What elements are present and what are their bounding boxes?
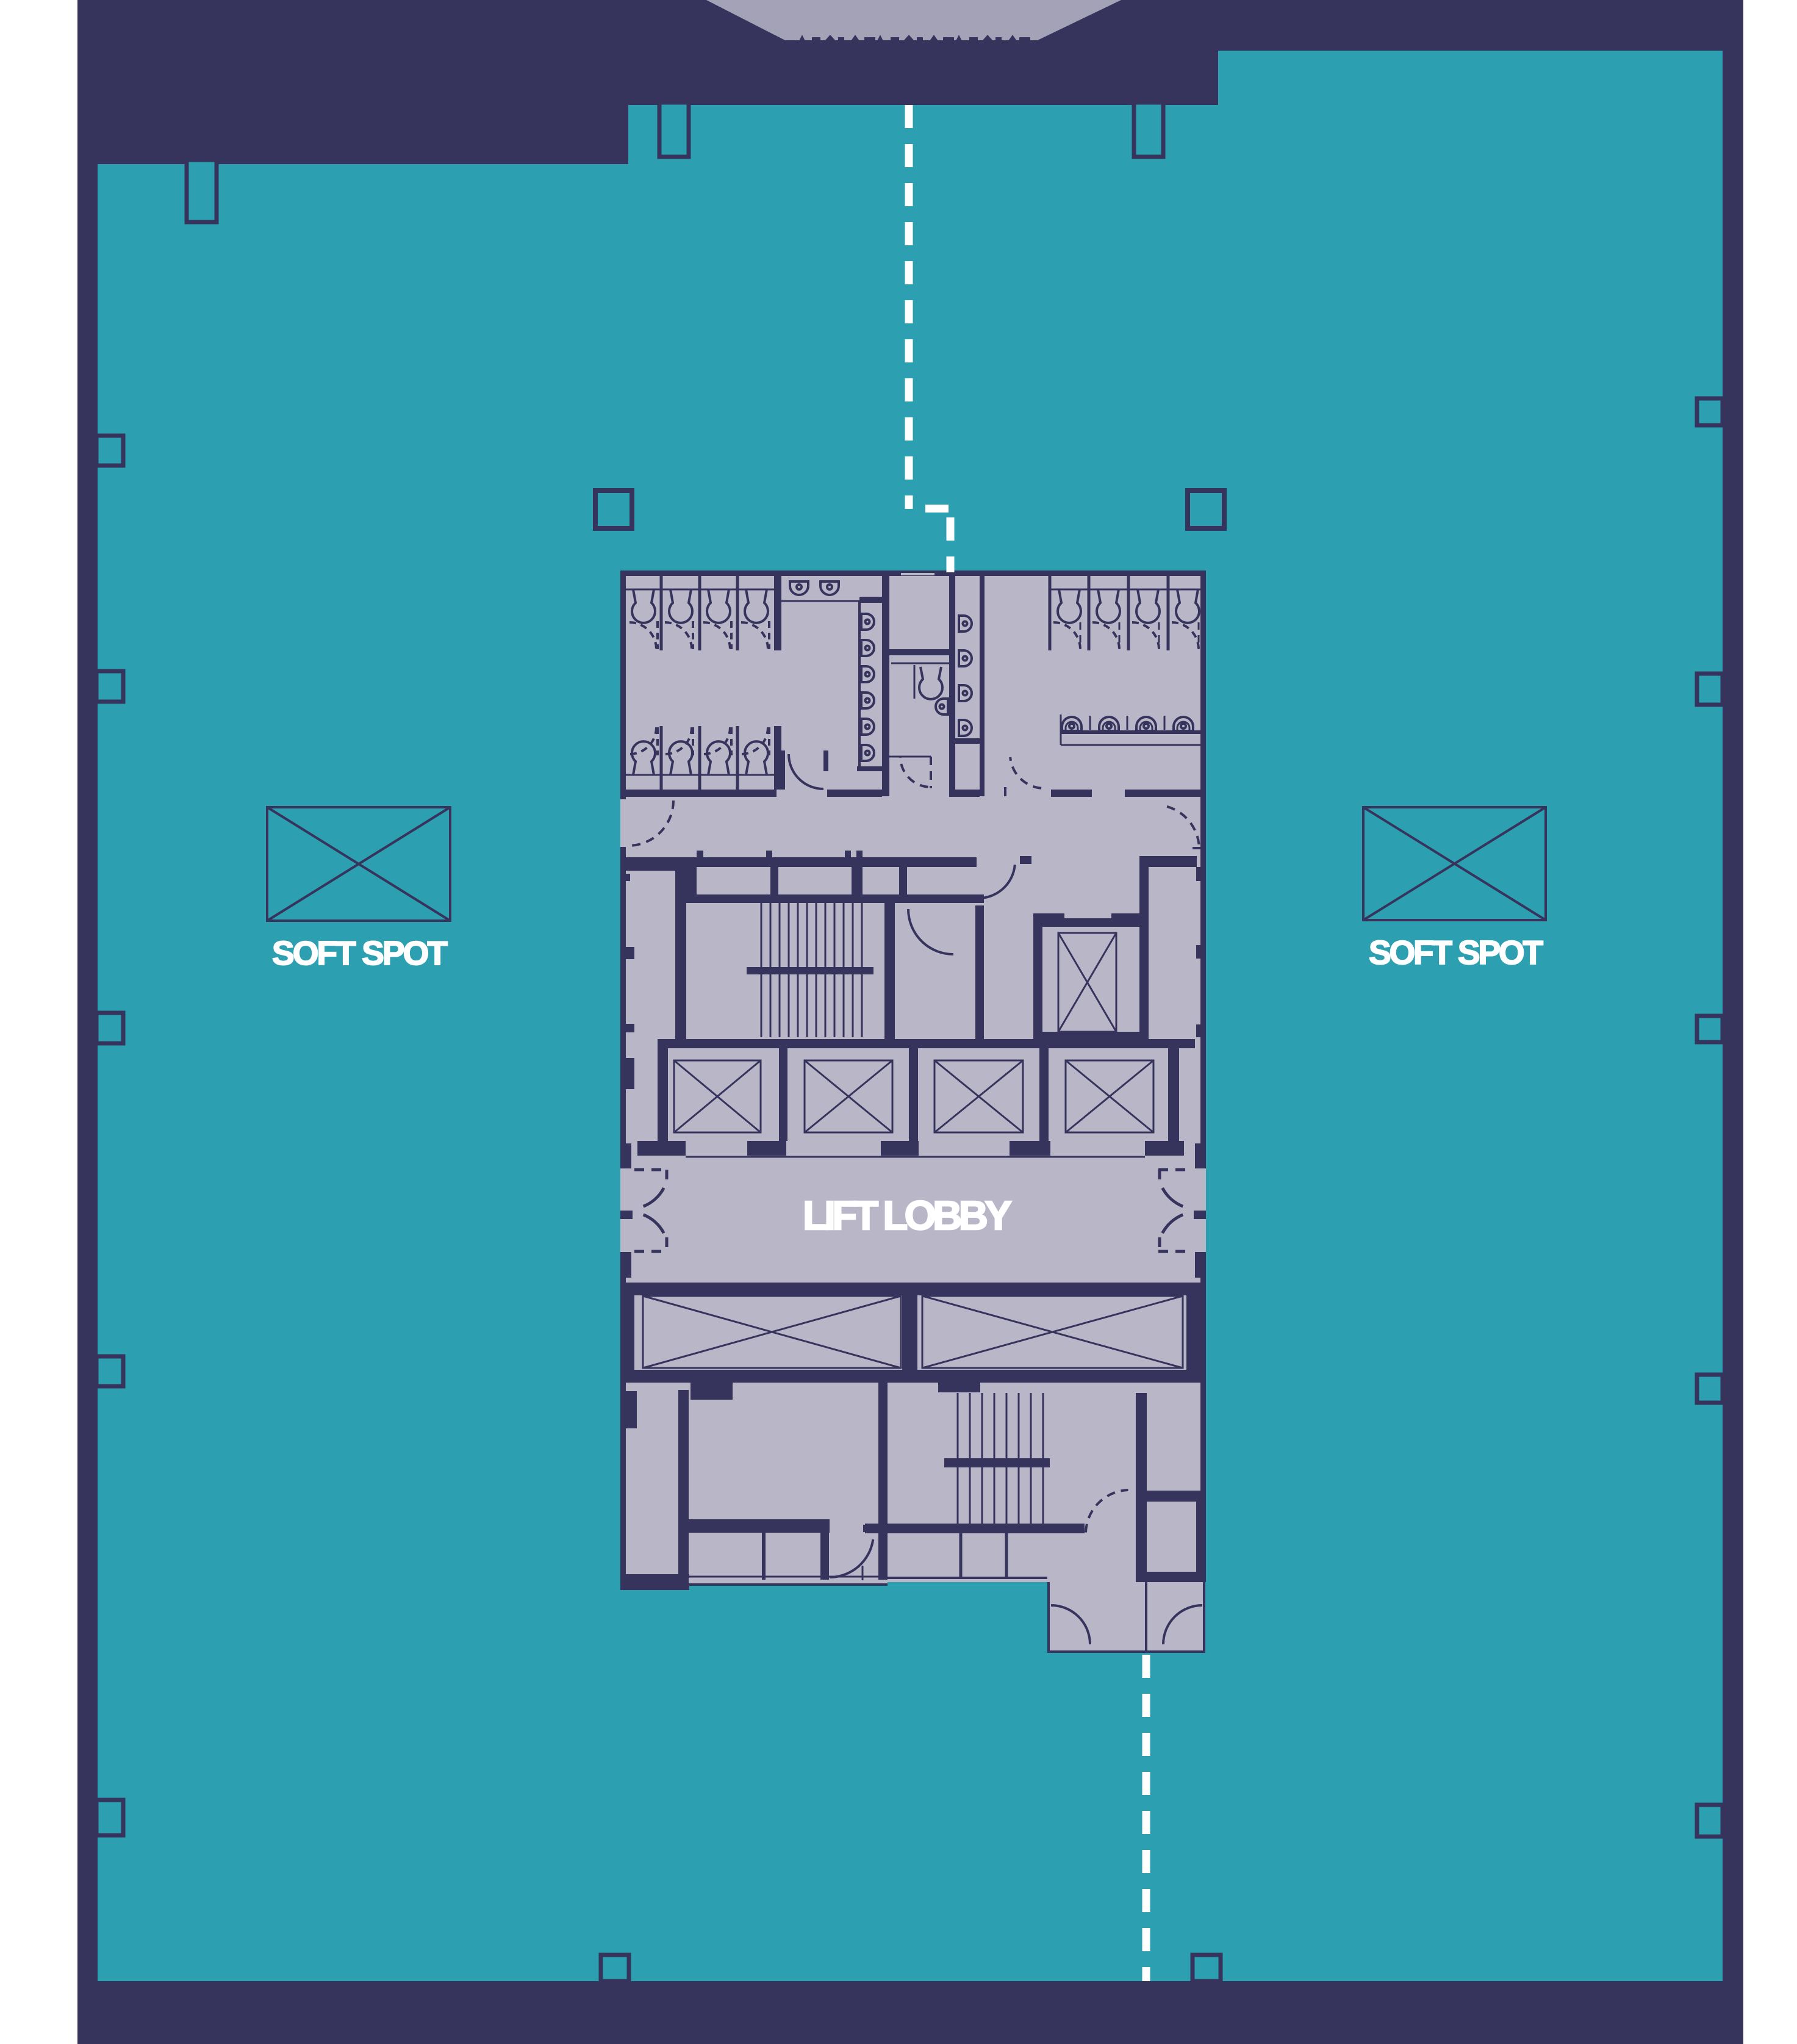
svg-text:SOFT SPOT: SOFT SPOT: [272, 934, 448, 972]
svg-text:LIFT LOBBY: LIFT LOBBY: [803, 1193, 1012, 1239]
svg-text:SOFT SPOT: SOFT SPOT: [1369, 934, 1543, 971]
